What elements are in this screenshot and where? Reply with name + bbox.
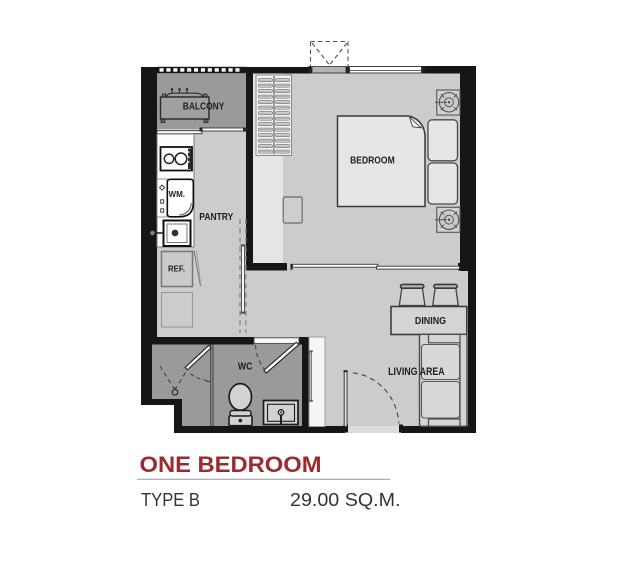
svg-text:WC: WC [238,362,253,373]
svg-text:BALCONY: BALCONY [183,101,225,112]
svg-text:29.00 SQ.M.: 29.00 SQ.M. [290,489,401,510]
svg-text:WM.: WM. [169,190,186,199]
svg-text:ONE BEDROOM: ONE BEDROOM [140,452,322,477]
svg-text:TYPE B: TYPE B [141,489,200,510]
svg-text:LIVING AREA: LIVING AREA [388,366,445,378]
svg-text:PANTRY: PANTRY [199,212,233,223]
svg-text:REF.: REF. [168,265,185,274]
svg-text:BEDROOM: BEDROOM [350,156,395,167]
svg-text:DINING: DINING [415,316,446,327]
